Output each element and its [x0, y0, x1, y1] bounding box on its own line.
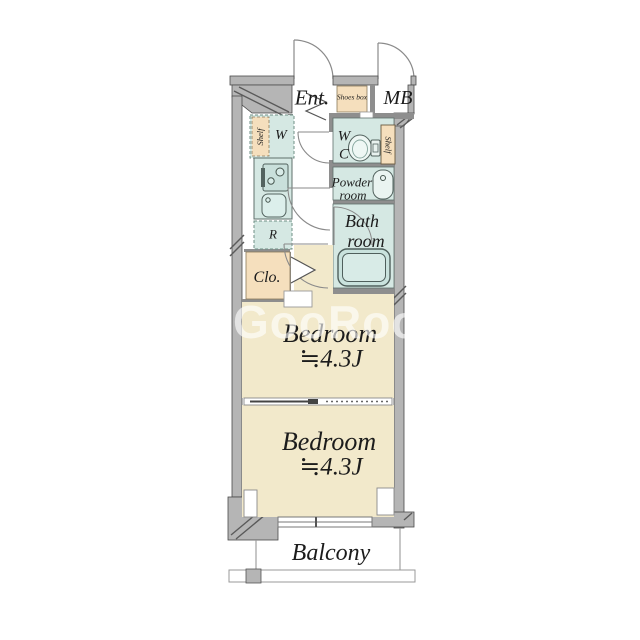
- top-wall-mid: [333, 76, 378, 85]
- wc-shelf-label: Shelf: [384, 137, 393, 154]
- side-window-left: [244, 490, 257, 517]
- wc-label-line2: C: [339, 148, 349, 163]
- stove-handle: [261, 168, 265, 187]
- stove-burner-2: [268, 178, 274, 184]
- left-wall: [232, 96, 242, 497]
- powder-label-line2: room: [340, 189, 367, 202]
- bathtub: [338, 249, 390, 286]
- meterbox-door-swing: [378, 43, 414, 79]
- floorplan-page: Ent. Shoes box MB W Shelf W C Shelf Powd…: [0, 0, 640, 640]
- bedroom2-size: ≒4.3J: [299, 455, 362, 480]
- bedroom1-door-threshold: [284, 291, 312, 307]
- hall-wall-seg1: [329, 113, 333, 132]
- meter-box-label: MB: [384, 88, 413, 108]
- wc-door-arc: [298, 132, 329, 163]
- top-wall-right-end: [411, 76, 416, 85]
- stove-burner-1: [276, 168, 284, 176]
- toilet-tank: [371, 140, 380, 156]
- meterbox-door-arc: [378, 43, 414, 79]
- bedroom2-name: Bedroom: [282, 429, 376, 455]
- entrance-label: Ent.: [295, 88, 329, 109]
- side-window-right: [377, 488, 394, 515]
- bedroom1-size: ≒4.3J: [299, 347, 362, 372]
- bath-bottom-wall: [329, 288, 394, 294]
- right-wall: [394, 118, 404, 528]
- washer-shelf-label: Shelf: [256, 129, 265, 146]
- entrance-door-swing: [294, 40, 333, 79]
- bedroom1-name: Bedroom: [283, 321, 377, 347]
- powder-sink: [373, 170, 393, 199]
- fridge-label: R: [269, 228, 277, 241]
- bath-label-line2: room: [347, 232, 384, 250]
- kitchen-sink: [262, 194, 286, 217]
- wall-shoes-mb-divider: [370, 85, 375, 113]
- shoes-box-label: Shoes box: [337, 93, 367, 101]
- partition-lock: [308, 399, 318, 404]
- balcony-post: [246, 569, 261, 583]
- bath-label-line1: Bath: [345, 212, 379, 230]
- powder-door-arc: [288, 188, 330, 230]
- wc-label-line1: W: [338, 130, 351, 145]
- closet-label: Clo.: [253, 270, 280, 286]
- bathtub-inner: [343, 254, 386, 282]
- balcony-label: Balcony: [292, 541, 371, 565]
- kitchen-stove: [261, 164, 288, 191]
- entrance-door-arc: [294, 40, 333, 79]
- washer-label: W: [275, 129, 287, 143]
- bedroom-partition: [244, 398, 392, 405]
- top-wall-left: [230, 76, 294, 85]
